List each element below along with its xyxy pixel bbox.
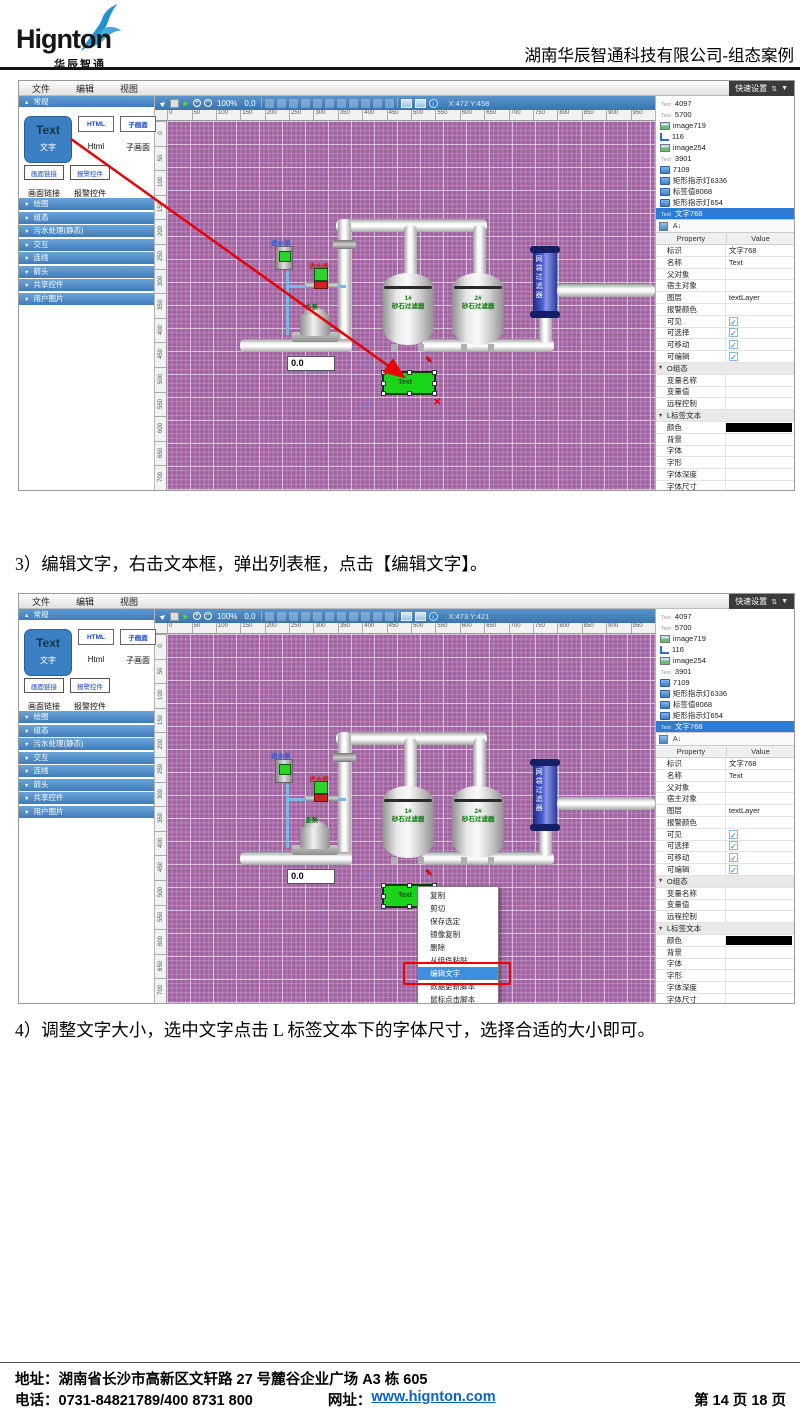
palette-accordion-section[interactable]: 箭头	[19, 266, 154, 278]
property-row[interactable]: 字形	[656, 970, 794, 982]
water-line	[286, 784, 289, 848]
property-value[interactable]: 文字768	[726, 758, 794, 769]
menu-item[interactable]: 编辑	[63, 82, 107, 95]
palette-text-button[interactable]: Text 文字	[24, 629, 72, 676]
quick-settings-button[interactable]: 快速设置 ⇅ ▼	[729, 81, 794, 96]
context-menu-item[interactable]: 保存选定	[418, 915, 498, 928]
palette-accordion-section[interactable]: 交互	[19, 752, 154, 764]
property-row[interactable]: 字体	[656, 446, 794, 458]
palette-subscreen-button[interactable]: 子画面	[120, 116, 156, 132]
screenlink-button-caption: 画面链接	[23, 701, 65, 712]
distribute-h-icon[interactable]	[337, 99, 346, 108]
property-row[interactable]: O组态	[656, 363, 794, 375]
property-value[interactable]: textLayer	[726, 292, 794, 303]
property-value[interactable]	[726, 375, 794, 386]
ruler-tick: 400	[362, 623, 386, 633]
property-row[interactable]: 远程控制	[656, 911, 794, 923]
tree-item[interactable]: 矩形指示灯6336	[656, 175, 794, 186]
property-value[interactable]	[726, 782, 794, 793]
palette-accordion-section[interactable]: 连线	[19, 252, 154, 264]
info-icon[interactable]: i	[429, 612, 438, 621]
property-row[interactable]: 图层 textLayer	[656, 292, 794, 304]
property-row[interactable]: 父对象	[656, 782, 794, 794]
property-label: 变量名称	[656, 375, 726, 386]
menu-item[interactable]: 视图	[107, 82, 151, 95]
tree-item[interactable]: 116	[656, 131, 794, 142]
quick-settings-label: 快速设置	[735, 596, 767, 607]
ruler-tick: 850	[582, 110, 606, 120]
resize-handle[interactable]	[407, 883, 412, 888]
property-value[interactable]	[726, 280, 794, 291]
sand-filter-tank-2[interactable]: 2#砂石过滤器	[452, 273, 504, 345]
palette-accordion-section[interactable]: 箭头	[19, 779, 154, 791]
canvas-area: ► ► + − 100% 0,0	[155, 96, 655, 490]
property-value[interactable]	[726, 841, 794, 852]
properties-panel: 4097 5700 image719	[655, 609, 794, 1003]
cursor-tool-icon[interactable]: ►	[157, 97, 169, 109]
menu-item[interactable]: 编辑	[63, 595, 107, 608]
property-row[interactable]: 可选择	[656, 328, 794, 340]
property-row[interactable]: 可见	[656, 829, 794, 841]
property-value[interactable]: Text	[726, 257, 794, 268]
same-size-icon[interactable]	[385, 612, 394, 621]
palette-section-label: 常规	[33, 610, 48, 619]
property-label: 变量值	[656, 387, 726, 398]
property-row[interactable]: 字体深度	[656, 469, 794, 481]
main-pump-device[interactable]	[300, 314, 330, 336]
property-value[interactable]	[726, 387, 794, 398]
property-row[interactable]: 变量值	[656, 387, 794, 399]
align-right-icon[interactable]	[289, 612, 298, 621]
ruler-tick: 250	[155, 244, 166, 269]
resize-handle[interactable]	[407, 370, 412, 375]
main-pump-label: 主泵	[305, 814, 318, 824]
palette-accordion-section[interactable]: 组态	[19, 725, 154, 737]
resize-handle[interactable]	[407, 904, 412, 909]
palette-accordion-section[interactable]: 共享控件	[19, 792, 154, 804]
same-size-icon[interactable]	[385, 99, 394, 108]
property-value[interactable]	[726, 982, 794, 993]
property-row[interactable]: 可选择	[656, 841, 794, 853]
property-row[interactable]: L标签文本	[656, 923, 794, 935]
run-icon[interactable]: ►	[182, 99, 190, 108]
align-left-icon[interactable]	[265, 612, 274, 621]
property-value[interactable]	[726, 446, 794, 457]
sand-filter-tank-1[interactable]: 1#砂石过滤器	[382, 273, 434, 345]
object-type-icon	[660, 722, 672, 731]
ruler-tick: 600	[460, 110, 484, 120]
inlet-pump-label: 进水泵	[271, 237, 291, 247]
property-value[interactable]	[726, 959, 794, 970]
ruler-tick: 550	[435, 110, 459, 120]
ruler-tick: 150	[240, 623, 264, 633]
same-height-icon[interactable]	[373, 99, 382, 108]
property-label: L标签文本	[656, 923, 794, 934]
toolbar-separator	[261, 98, 262, 108]
property-value[interactable]	[726, 888, 794, 899]
property-value[interactable]	[726, 398, 794, 409]
property-row[interactable]: 背景	[656, 947, 794, 959]
property-value[interactable]	[726, 852, 794, 863]
scada-editor-screenshot-2: 文件编辑视图 快速设置 ⇅ ▼ 常规 Text 文字 HTML Html	[18, 593, 795, 1004]
object-type-icon	[660, 144, 670, 152]
tree-item[interactable]: 3901	[656, 666, 794, 677]
property-value[interactable]	[726, 481, 794, 490]
sort-icon[interactable]: A↓	[673, 223, 681, 230]
property-value[interactable]	[726, 316, 794, 327]
resize-handle[interactable]	[432, 370, 437, 375]
palette-accordion-section[interactable]: 交互	[19, 239, 154, 251]
context-menu-item[interactable]: 删除	[418, 941, 498, 954]
property-value[interactable]	[726, 304, 794, 315]
ruler-tick: 300	[155, 269, 166, 294]
property-row[interactable]: 报警颜色	[656, 304, 794, 316]
menu-item[interactable]: 文件	[19, 595, 63, 608]
resize-handle[interactable]	[432, 381, 437, 386]
tree-item[interactable]: 4097	[656, 98, 794, 109]
property-value[interactable]	[726, 970, 794, 981]
context-menu-item[interactable]: 复制	[418, 889, 498, 902]
property-value[interactable]	[726, 947, 794, 958]
tree-item[interactable]: image254	[656, 655, 794, 666]
inlet-pump-device[interactable]	[275, 246, 293, 270]
property-row[interactable]: 宿主对象	[656, 280, 794, 292]
inlet-valve-device[interactable]	[314, 781, 328, 794]
same-width-icon[interactable]	[361, 99, 370, 108]
property-row[interactable]: 远程控制	[656, 398, 794, 410]
zoom-in-icon[interactable]: +	[193, 612, 201, 620]
property-value[interactable]	[726, 457, 794, 468]
run-icon[interactable]: ►	[182, 612, 190, 621]
ruler-tick: 300	[155, 782, 166, 807]
value-display-box[interactable]: 0.0	[287, 869, 335, 884]
export-image-icon[interactable]	[401, 99, 412, 108]
resize-handle[interactable]	[381, 391, 386, 396]
property-row[interactable]: 可见	[656, 316, 794, 328]
cursor-tool-icon[interactable]: ►	[157, 610, 169, 622]
property-value[interactable]	[726, 423, 792, 432]
distribute-v-icon[interactable]	[349, 99, 358, 108]
delete-cross-icon[interactable]: ✕	[433, 397, 441, 408]
object-type-icon	[660, 110, 672, 119]
distribute-v-icon[interactable]	[349, 612, 358, 621]
canvas-toolbar: ► ► + − 100% 0,0	[155, 609, 655, 623]
property-row[interactable]: L标签文本	[656, 410, 794, 422]
categorize-icon[interactable]	[659, 735, 668, 744]
resize-handle[interactable]	[432, 391, 437, 396]
tree-item[interactable]: 矩形指示灯654	[656, 197, 794, 208]
tree-item[interactable]: 3901	[656, 153, 794, 164]
quick-settings-label: 快速设置	[735, 83, 767, 94]
ruler-tick: 750	[533, 110, 557, 120]
context-menu-item[interactable]: 镜像复制	[418, 928, 498, 941]
property-row[interactable]: 字体深度	[656, 982, 794, 994]
ruler-tick: 300	[313, 623, 337, 633]
property-value[interactable]	[726, 911, 794, 922]
palette-accordion-section[interactable]: 用户图片	[19, 293, 154, 305]
menu-bar: 文件编辑视图 快速设置 ⇅ ▼	[19, 594, 794, 609]
palette-accordion-section[interactable]: 连线	[19, 765, 154, 777]
property-row[interactable]: 名称 Text	[656, 770, 794, 782]
pipe[interactable]	[557, 797, 655, 810]
background-image-icon[interactable]	[415, 99, 426, 108]
align-center-icon[interactable]	[277, 99, 286, 108]
property-value[interactable]: textLayer	[726, 805, 794, 816]
context-menu-item[interactable]: 鼠标点击脚本	[418, 993, 498, 1003]
resize-handle[interactable]	[407, 391, 412, 396]
tree-item[interactable]: 4097	[656, 611, 794, 622]
tree-item[interactable]: 文字768	[656, 208, 794, 219]
align-left-icon[interactable]	[265, 99, 274, 108]
property-row[interactable]: 可移动	[656, 339, 794, 351]
palette-subscreen-button[interactable]: 子画面	[120, 629, 156, 645]
palette-alarm-item: 报警控件 报警控件	[69, 165, 111, 199]
ruler-tick: 350	[338, 623, 362, 633]
distribute-h-icon[interactable]	[337, 612, 346, 621]
property-row[interactable]: 字形	[656, 457, 794, 469]
align-center-icon[interactable]	[277, 612, 286, 621]
palette-accordion-section[interactable]: 组态	[19, 212, 154, 224]
property-value[interactable]	[726, 817, 794, 828]
object-type-icon	[660, 154, 672, 163]
same-height-icon[interactable]	[373, 612, 382, 621]
palette-accordion-section[interactable]: 绘图	[19, 711, 154, 723]
value-column-header: Value	[727, 747, 794, 756]
property-row[interactable]: 标识 文字768	[656, 758, 794, 770]
align-right-icon[interactable]	[289, 99, 298, 108]
property-row[interactable]: 字体尺寸	[656, 481, 794, 490]
zoom-in-icon[interactable]: +	[193, 99, 201, 107]
property-row[interactable]: 名称 Text	[656, 257, 794, 269]
property-row[interactable]: 字体	[656, 959, 794, 971]
property-row[interactable]: 颜色	[656, 935, 794, 947]
object-type-icon	[660, 679, 670, 687]
design-canvas[interactable]: 进水泵 进水阀 主泵 1#砂石过滤器	[167, 121, 655, 490]
tree-item[interactable]: image719	[656, 120, 794, 131]
tree-item[interactable]: 116	[656, 644, 794, 655]
tree-item[interactable]: 5700	[656, 109, 794, 120]
property-value[interactable]	[726, 936, 792, 945]
context-menu-item[interactable]: 剪切	[418, 902, 498, 915]
align-top-icon[interactable]	[301, 612, 310, 621]
object-label: 7109	[673, 678, 690, 687]
align-top-icon[interactable]	[301, 99, 310, 108]
palette-accordion-section[interactable]: 污水处理(静态)	[19, 225, 154, 237]
save-icon[interactable]	[170, 612, 179, 621]
property-grid: 标识 文字768 名称 Text 父对象	[656, 758, 794, 1003]
object-type-icon	[660, 646, 669, 654]
ruler-tick: 800	[557, 623, 581, 633]
ruler-tick: 250	[155, 757, 166, 782]
inlet-valve-device[interactable]	[314, 268, 328, 281]
property-row[interactable]: O组态	[656, 876, 794, 888]
palette-alarm-button[interactable]: 报警控件	[70, 678, 110, 693]
pipe-valve[interactable]	[333, 753, 356, 762]
tree-item[interactable]: 标签值8068	[656, 186, 794, 197]
property-row[interactable]: 颜色	[656, 422, 794, 434]
background-image-icon[interactable]	[415, 612, 426, 621]
main-pump-label: 主泵	[305, 301, 318, 311]
ruler-tick: 100	[216, 110, 240, 120]
ruler-tick: 200	[265, 623, 289, 633]
palette-alarm-button[interactable]: 报警控件	[70, 165, 110, 180]
export-image-icon[interactable]	[401, 612, 412, 621]
property-row[interactable]: 可编辑	[656, 864, 794, 876]
property-value[interactable]	[726, 339, 794, 350]
resize-handle[interactable]	[381, 904, 386, 909]
menu-item[interactable]: 文件	[19, 82, 63, 95]
tree-item[interactable]: 标签值8068	[656, 699, 794, 710]
sort-icon[interactable]: A↓	[673, 736, 681, 743]
info-icon[interactable]: i	[429, 99, 438, 108]
tree-item[interactable]: 7109	[656, 164, 794, 175]
palette-accordion-section[interactable]: 共享控件	[19, 279, 154, 291]
property-toolbar: A↓	[656, 732, 794, 746]
property-row[interactable]: 宿主对象	[656, 793, 794, 805]
pen-icon: ✎	[425, 355, 433, 366]
origin-coords: 0,0	[244, 612, 255, 621]
ruler-tick: 450	[155, 855, 166, 880]
resize-handle[interactable]	[381, 894, 386, 899]
property-row[interactable]: 字体尺寸	[656, 994, 794, 1003]
ruler-tick: 100	[155, 170, 166, 195]
object-label: 矩形指示灯6336	[673, 175, 727, 186]
object-type-icon	[660, 701, 670, 709]
object-type-icon	[660, 188, 670, 196]
tree-item[interactable]: image254	[656, 142, 794, 153]
property-row[interactable]: 报警颜色	[656, 817, 794, 829]
bag-filter-cylinder[interactable]: 网袋过滤器	[533, 762, 557, 828]
object-type-icon	[660, 612, 672, 621]
object-type-icon	[660, 133, 669, 141]
ruler-tick: 100	[216, 623, 240, 633]
property-row[interactable]: 变量名称	[656, 375, 794, 387]
property-value[interactable]	[726, 269, 794, 280]
menu-items: 文件编辑视图	[19, 595, 151, 608]
align-middle-icon[interactable]	[313, 612, 322, 621]
property-label: L标签文本	[656, 410, 794, 421]
ruler-tick: 400	[155, 831, 166, 856]
sand-filter-tank-1[interactable]: 1#砂石过滤器	[382, 786, 434, 858]
palette-html-button[interactable]: HTML	[78, 629, 114, 645]
property-label: 可编辑	[656, 351, 726, 362]
text-button-caption: 文字	[25, 142, 71, 153]
property-value[interactable]	[726, 434, 794, 445]
categorize-icon[interactable]	[659, 222, 668, 231]
property-row[interactable]: 标识 文字768	[656, 245, 794, 257]
sand-filter-tank-2[interactable]: 2#砂石过滤器	[452, 786, 504, 858]
ruler-tick: 150	[155, 708, 166, 733]
text-button-label: Text	[25, 636, 71, 650]
same-width-icon[interactable]	[361, 612, 370, 621]
tree-item[interactable]: 矩形指示灯6336	[656, 688, 794, 699]
property-row[interactable]: 变量值	[656, 900, 794, 912]
palette-section-header[interactable]: 常规	[19, 609, 154, 620]
ruler-tick: 450	[155, 342, 166, 367]
property-value[interactable]	[726, 793, 794, 804]
property-value[interactable]: 文字768	[726, 245, 794, 256]
property-value[interactable]	[726, 864, 794, 875]
inlet-pump-device[interactable]	[275, 759, 293, 783]
quick-settings-button[interactable]: 快速设置 ⇅ ▼	[729, 594, 794, 609]
save-icon[interactable]	[170, 99, 179, 108]
palette-accordion-section[interactable]: 污水处理(静态)	[19, 738, 154, 750]
pipe[interactable]	[557, 284, 655, 297]
pipe-valve[interactable]	[333, 240, 356, 249]
palette-section-header[interactable]: 常规	[19, 96, 154, 107]
bag-filter-cylinder[interactable]: 网袋过滤器	[533, 249, 557, 315]
palette-subscreen-item: 子画面 子画面	[117, 629, 159, 666]
palette-html-button[interactable]: HTML	[78, 116, 114, 132]
inlet-valve-body	[314, 794, 328, 802]
bag-filter-label: 网袋过滤器	[533, 768, 557, 824]
ruler-tick: 650	[484, 623, 508, 633]
property-row[interactable]: 父对象	[656, 269, 794, 281]
object-label: 文字768	[675, 721, 703, 732]
property-value[interactable]: Text	[726, 770, 794, 781]
design-canvas[interactable]: 进水泵 进水阀 主泵 1#砂石过滤器	[167, 634, 655, 1003]
vertical-ruler: 0501001502002503003504004505005506006507…	[155, 121, 167, 490]
object-label: image719	[673, 634, 706, 643]
align-middle-icon[interactable]	[313, 99, 322, 108]
property-toolbar: A↓	[656, 219, 794, 233]
zoom-out-icon[interactable]: −	[204, 99, 212, 107]
palette-accordion-section[interactable]: 绘图	[19, 198, 154, 210]
property-row[interactable]: 可编辑	[656, 351, 794, 363]
footer-website-link[interactable]: www.hignton.com	[371, 1389, 495, 1410]
property-value[interactable]	[726, 469, 794, 480]
property-value[interactable]	[726, 829, 794, 840]
palette-screenlink-button[interactable]: 画面链接	[24, 165, 64, 180]
property-label: 可选择	[656, 841, 726, 852]
property-value[interactable]	[726, 328, 794, 339]
property-value[interactable]	[726, 994, 794, 1003]
palette-screenlink-button[interactable]: 画面链接	[24, 678, 64, 693]
property-value[interactable]	[726, 351, 794, 362]
align-bottom-icon[interactable]	[325, 612, 334, 621]
zoom-out-icon[interactable]: −	[204, 612, 212, 620]
ruler-tick: 350	[155, 293, 166, 318]
inlet-valve-body	[314, 281, 328, 289]
palette-accordion-section[interactable]: 用户图片	[19, 806, 154, 818]
align-bottom-icon[interactable]	[325, 99, 334, 108]
property-value[interactable]	[726, 900, 794, 911]
tree-item[interactable]: 文字768	[656, 721, 794, 732]
property-row[interactable]: 图层 textLayer	[656, 805, 794, 817]
property-row[interactable]: 背景	[656, 434, 794, 446]
ruler-tick: 400	[155, 318, 166, 343]
tree-item[interactable]: 5700	[656, 622, 794, 633]
property-row[interactable]: 可移动	[656, 852, 794, 864]
ruler-tick: 800	[557, 110, 581, 120]
tree-item[interactable]: 矩形指示灯654	[656, 710, 794, 721]
tree-item[interactable]: 7109	[656, 677, 794, 688]
property-row[interactable]: 变量名称	[656, 888, 794, 900]
resize-handle[interactable]	[381, 381, 386, 386]
ruler-tick: 750	[533, 623, 557, 633]
ruler-tick: 50	[192, 623, 216, 633]
editor-body: 常规 Text 文字 HTML Html 子画面 子画面 画	[19, 96, 794, 490]
main-pump-device[interactable]	[300, 827, 330, 849]
resize-handle[interactable]	[381, 883, 386, 888]
tree-item[interactable]: image719	[656, 633, 794, 644]
menu-item[interactable]: 视图	[107, 595, 151, 608]
palette-panel: 常规 Text 文字 HTML Html 子画面 子画面 画	[19, 96, 155, 490]
resize-handle[interactable]	[381, 370, 386, 375]
value-display-box[interactable]: 0.0	[287, 356, 335, 371]
selected-text-element[interactable]: Text	[382, 371, 436, 395]
palette-text-button[interactable]: Text 文字	[24, 116, 72, 163]
